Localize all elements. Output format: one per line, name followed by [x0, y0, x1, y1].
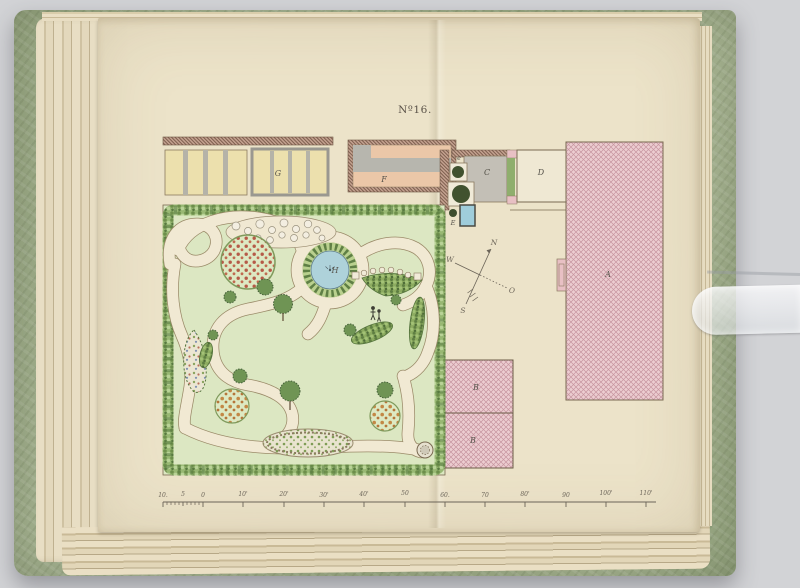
oval-parterre [263, 429, 353, 457]
scale-label: 5 [181, 491, 185, 498]
label-h: H [331, 266, 340, 275]
scale-label: 20' [278, 491, 289, 498]
page-stack-left-edges [36, 18, 104, 562]
mansion-a-block: A [557, 142, 663, 400]
scale-label: 60. [440, 492, 450, 499]
scale-label: 10' [238, 491, 248, 498]
orange-bed-right [370, 401, 400, 431]
scale-label: 110' [639, 490, 652, 497]
scale-label: 80' [520, 491, 530, 498]
tree-in-planter-large [452, 185, 470, 203]
scale-label: 70 [481, 492, 489, 499]
compass-o: O [509, 286, 515, 295]
building-d-block: D [510, 150, 566, 210]
scale-label: 40' [358, 491, 369, 498]
frames-g-block: G [163, 137, 333, 195]
scale-label: 30' [319, 492, 329, 499]
garden: H [163, 205, 445, 475]
page-stack-right-edges [698, 26, 712, 526]
garden-plan-plate: Nº16. G F [156, 92, 670, 516]
scale-label: 10. [158, 492, 168, 499]
label-b-lower: B [469, 436, 476, 445]
scale-label: 100' [599, 490, 612, 497]
scale-bar: 10. 5 0 10' 20' 30' 40' 50 60. 70 80' 90… [158, 490, 656, 507]
basin-tree-dot [449, 209, 457, 217]
page-holder-tab [691, 285, 800, 336]
label-f: F [380, 175, 387, 184]
compass-rose: N W O S [446, 238, 515, 315]
tree-in-planter-small [452, 166, 464, 178]
compass-n: N [490, 238, 498, 247]
label-a: A [604, 270, 611, 279]
pond: H [307, 247, 354, 294]
water-basin [460, 205, 475, 226]
scale-label: 0 [201, 492, 205, 499]
label-g: G [275, 169, 282, 178]
label-c: C [484, 168, 490, 177]
well-basin [417, 442, 433, 458]
scale-label: 50 [401, 490, 409, 497]
outbuildings-b-block: B B [443, 360, 513, 468]
compass-s: S [460, 306, 465, 315]
scale-label: 90 [562, 492, 570, 499]
photo-background: Nº16. G F [0, 0, 800, 588]
label-b-upper: B [472, 383, 479, 392]
orange-bed-left [215, 389, 249, 423]
label-e-basin: E [450, 219, 456, 227]
label-d: D [537, 168, 545, 177]
compass-w: W [446, 255, 455, 264]
plate-number: Nº16. [398, 104, 432, 116]
label-e-small: e [457, 154, 461, 162]
